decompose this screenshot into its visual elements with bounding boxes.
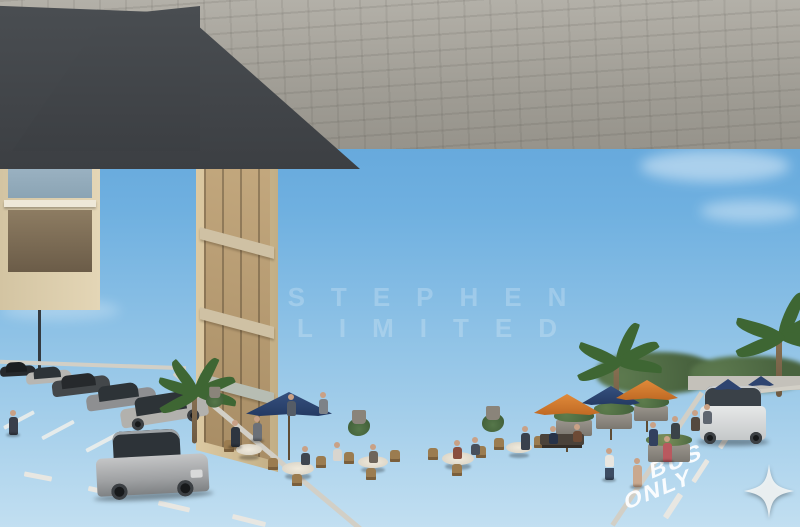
person <box>286 394 296 416</box>
person <box>648 422 658 446</box>
headlight <box>190 469 202 478</box>
person <box>318 392 328 414</box>
planter-hedge <box>634 406 668 421</box>
cloud <box>700 200 800 222</box>
cafe-chair <box>268 458 278 470</box>
cafe-chair <box>494 438 504 450</box>
sparkle-watermark-logo <box>744 464 794 518</box>
person-seated <box>572 424 582 442</box>
cafe-chair <box>390 450 400 462</box>
floor-slab <box>4 200 96 207</box>
lane-dash <box>24 471 52 481</box>
cloud <box>640 150 790 182</box>
storefront <box>8 210 92 272</box>
cafe-chair <box>366 468 376 480</box>
person <box>230 420 240 447</box>
person-seated <box>332 442 342 461</box>
person-seated <box>452 440 462 459</box>
person <box>632 458 642 487</box>
cafe-chair <box>344 452 354 464</box>
person-seated <box>368 444 378 463</box>
lane-dash <box>232 514 266 527</box>
cafe-chair <box>452 464 462 476</box>
person <box>604 448 614 480</box>
person <box>520 426 530 450</box>
cafe-chair <box>292 474 302 486</box>
parking-stall-line <box>41 420 75 440</box>
planter-hedge <box>596 413 632 429</box>
cafe-chair <box>316 456 326 468</box>
person-seated <box>470 437 480 455</box>
person <box>690 410 700 431</box>
lane-dash <box>158 500 190 512</box>
architectural-rendering: STEPHEN FURNITURE OUTLET STH <box>0 0 800 527</box>
person <box>8 410 18 435</box>
person <box>662 436 672 462</box>
person-seated <box>548 426 558 444</box>
person-seated <box>300 446 310 465</box>
person <box>670 416 680 439</box>
person <box>252 416 262 441</box>
person <box>702 404 712 424</box>
cafe-chair <box>428 448 438 460</box>
umbrella-pole <box>288 412 290 460</box>
